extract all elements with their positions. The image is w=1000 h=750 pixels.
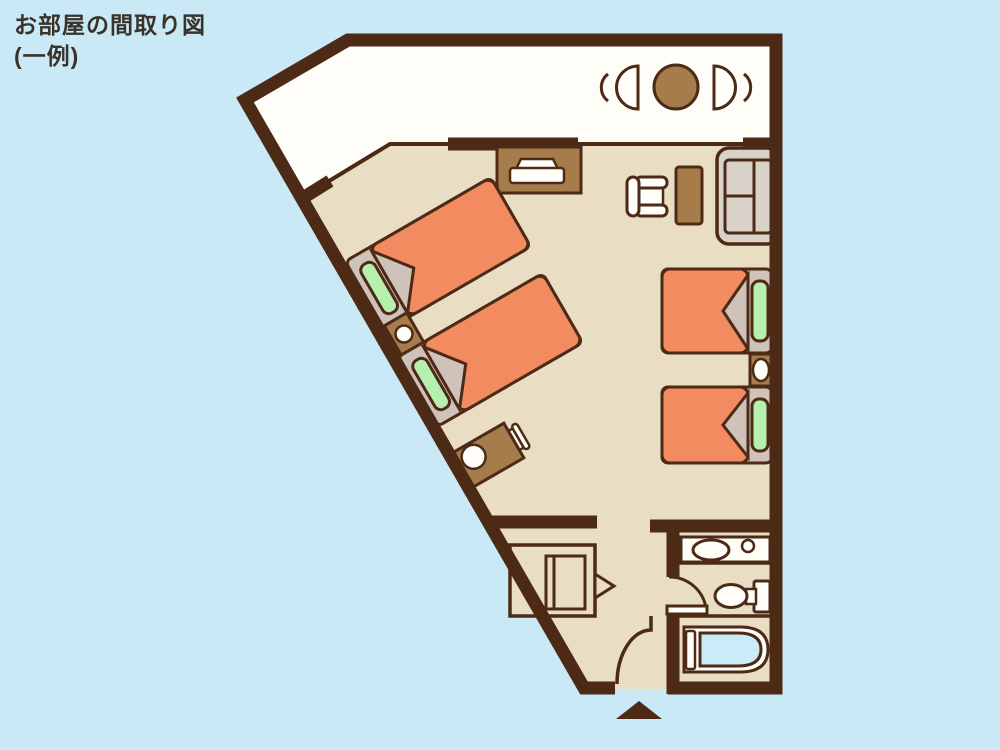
tv-cabinet: [497, 147, 581, 193]
floorplan-title: お部屋の間取り図 (一例): [14, 10, 206, 72]
armchair: [627, 177, 667, 216]
bed-4: [662, 387, 772, 463]
floorplan-title-line1: お部屋の間取り図: [14, 10, 206, 41]
floor-plan-page: お部屋の間取り図 (一例): [0, 0, 1000, 750]
bathtub: [684, 627, 768, 672]
pillow: [752, 281, 768, 341]
entrance-marker: [616, 701, 662, 719]
round-table: [654, 65, 698, 109]
floorplan-title-line2: (一例): [14, 41, 206, 72]
floor-plan-svg: [0, 0, 1000, 750]
bed-3: [662, 269, 772, 353]
nightstand-2: [750, 354, 772, 386]
side-table: [676, 167, 702, 224]
washbasin: [681, 537, 770, 562]
pillow: [752, 399, 768, 451]
bathtub-water: [700, 633, 761, 666]
